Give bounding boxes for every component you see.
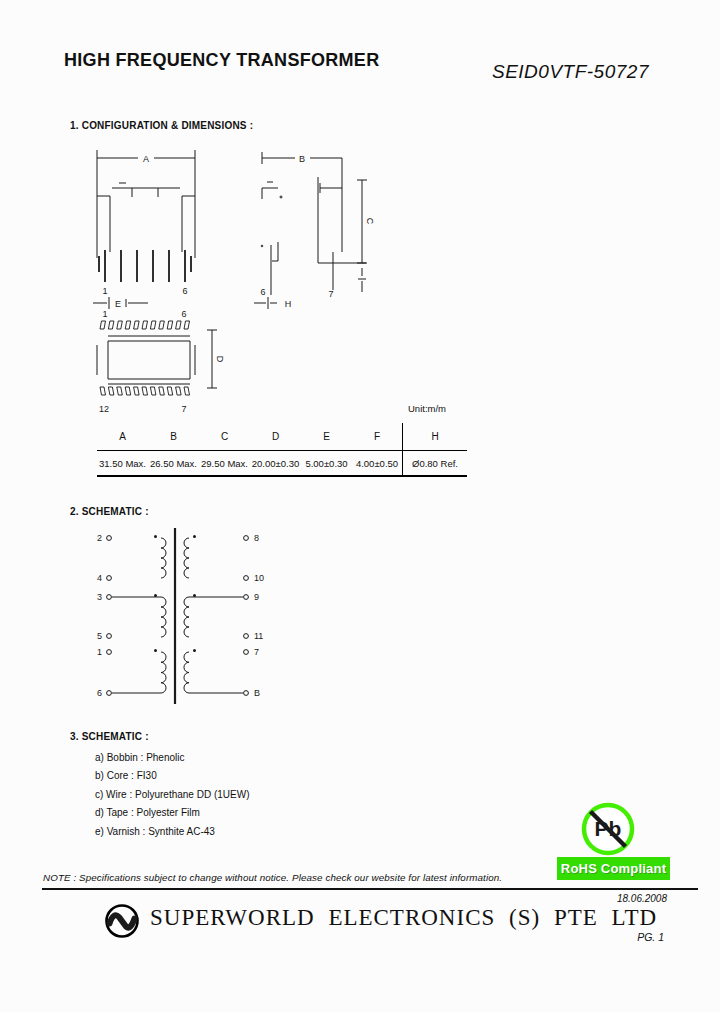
front-pin-label-6: 6: [182, 286, 187, 296]
front-view-pins: [99, 250, 191, 282]
side-view-drawing: B 6 7 C: [254, 151, 375, 309]
table-header: H: [403, 423, 467, 451]
schematic-pin-label: 7: [254, 647, 259, 657]
datasheet-page: HIGH FREQUENCY TRANSFORMER SEID0VTF-5072…: [0, 0, 720, 1012]
table-value: 20.00±0.30: [250, 451, 301, 477]
schematic-wires: [112, 597, 243, 693]
schematic-pin-label: 10: [254, 573, 264, 583]
table-header: C: [199, 423, 250, 451]
material-item-wire: c) Wire : Polyurethane DD (1UEW): [95, 786, 249, 804]
material-item-tape: d) Tape : Polyester Film: [95, 804, 249, 822]
material-item-bobbin: a) Bobbin : Phenolic: [95, 749, 249, 767]
primary-windings: [161, 538, 166, 693]
page-number: PG. 1: [637, 931, 664, 943]
material-item-varnish: e) Varnish : Synthite AC-43: [95, 823, 249, 841]
schematic-pin-label: 11: [254, 631, 263, 641]
top-pin-label-1: 1: [102, 309, 107, 319]
table-header: E: [301, 423, 352, 451]
table-column-c: C 29.50 Max.: [199, 423, 250, 477]
dim-label-e: E: [115, 299, 121, 309]
front-view-drawing: A 1 6: [93, 150, 195, 309]
section2-heading: 2. SCHEMATIC :: [70, 506, 149, 517]
footer-divider: [42, 888, 698, 890]
company-name: SUPERWORLD ELECTRONICS (S) PTE LTD: [150, 905, 657, 931]
table-header: F: [352, 423, 402, 451]
part-number: SEID0VTF-50727: [492, 61, 649, 83]
unit-label: Unit:m/m: [408, 403, 446, 414]
secondary-windings: [184, 538, 189, 693]
table-header: D: [250, 423, 301, 451]
schematic-pin-label: 8: [254, 533, 259, 543]
dim-label-a: A: [143, 154, 149, 164]
schematic-pin-label: B: [254, 688, 260, 698]
table-column-h: H Ø0.80 Ref.: [403, 423, 467, 477]
top-view-pads-upper: [100, 321, 190, 329]
material-item-core: b) Core : FI30: [95, 767, 249, 785]
dim-label-c: C: [365, 218, 375, 225]
top-view-drawing: 1 6: [97, 309, 225, 414]
dim-label-b: B: [299, 154, 305, 164]
pb-free-icon: Pb: [578, 800, 638, 860]
table-value: 4.00±0.50: [352, 451, 402, 477]
table-value: 29.50 Max.: [199, 451, 250, 477]
schematic-pin-label: 6: [97, 688, 102, 698]
dimensions-drawing: A 1 6: [85, 140, 465, 430]
rohs-badge-label: RoHS Compliant: [561, 861, 666, 876]
date-label: 18.06.2008: [617, 893, 667, 904]
dimensions-table: A 31.50 Max. B 26.50 Max. C 29.50 Max. D…: [97, 423, 467, 477]
table-column-a: A 31.50 Max.: [97, 423, 148, 477]
table-value: 31.50 Max.: [97, 451, 148, 477]
table-header: B: [148, 423, 199, 451]
table-column-e: E 5.00±0.30: [301, 423, 352, 477]
side-pin-label-6: 6: [260, 287, 265, 297]
top-pin-label-6: 6: [181, 309, 186, 319]
schematic-pin-label: 3: [97, 592, 102, 602]
table-column-b: B 26.50 Max.: [148, 423, 199, 477]
side-pin-label-7: 7: [328, 289, 333, 299]
schematic-pin-label: 5: [97, 631, 102, 641]
front-pin-label-1: 1: [102, 286, 107, 296]
right-terminals: [244, 536, 249, 696]
schematic-pin-label: 4: [97, 573, 102, 583]
schematic-pin-label: 1: [97, 647, 102, 657]
left-terminals: [107, 536, 112, 696]
top-pin-label-12: 12: [99, 404, 109, 414]
section1-heading: 1. CONFIGURATION & DIMENSIONS :: [70, 120, 253, 131]
page-title: HIGH FREQUENCY TRANSFORMER: [64, 50, 379, 71]
dim-label-h: H: [285, 299, 292, 309]
table-value: 26.50 Max.: [148, 451, 199, 477]
company-logo-icon: [103, 902, 141, 940]
schematic-pin-label: 2: [97, 533, 102, 543]
table-header: A: [97, 423, 148, 451]
section3-heading: 3. SCHEMATIC :: [70, 731, 149, 742]
table-value: Ø0.80 Ref.: [403, 451, 467, 477]
schematic-pin-label: 9: [254, 592, 259, 602]
materials-list: a) Bobbin : Phenolic b) Core : FI30 c) W…: [95, 749, 249, 841]
top-pin-label-7: 7: [181, 404, 186, 414]
table-value: 5.00±0.30: [301, 451, 352, 477]
table-column-f: F 4.00±0.50: [352, 423, 403, 477]
top-view-pads-lower: [100, 387, 190, 395]
dim-label-d: D: [215, 356, 225, 363]
table-column-d: D 20.00±0.30: [250, 423, 301, 477]
footer-note: NOTE : Specifications subject to change …: [43, 872, 502, 883]
schematic-drawing: 2 4 3 5 1 6 8 10 9 11 7 B: [85, 520, 275, 710]
rohs-compliant-badge: RoHS Compliant: [557, 857, 670, 880]
